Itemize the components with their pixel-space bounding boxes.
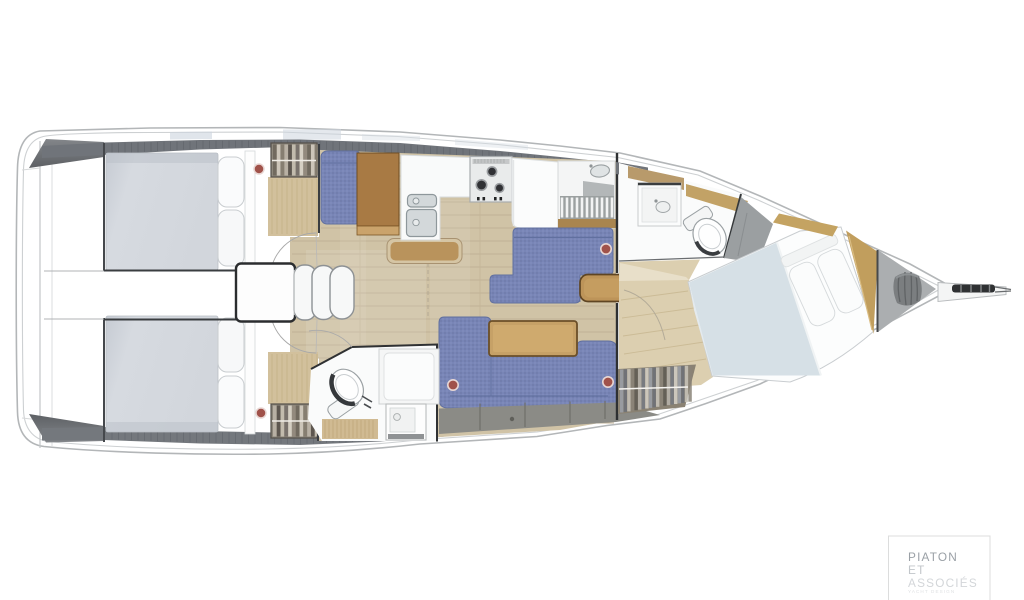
svg-text:ASSOCIÉS: ASSOCIÉS bbox=[908, 576, 978, 590]
svg-text:PIATON: PIATON bbox=[908, 550, 958, 564]
svg-text:YACHT DESIGN: YACHT DESIGN bbox=[908, 589, 955, 594]
svg-text:ET: ET bbox=[908, 563, 925, 577]
